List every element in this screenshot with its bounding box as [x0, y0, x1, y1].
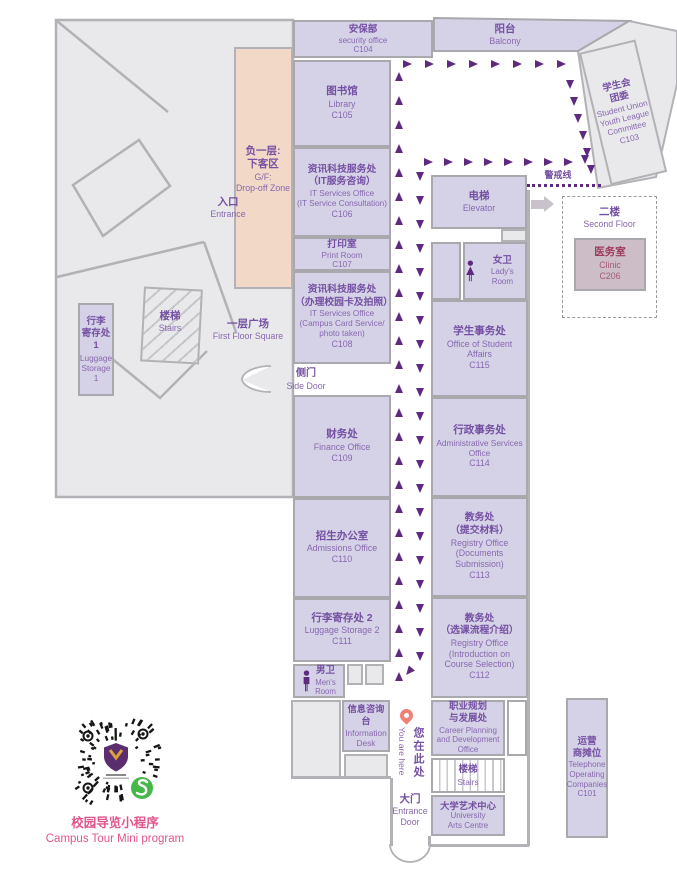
label-zh: 学生事务处	[453, 325, 506, 338]
tour-path-arrow	[395, 144, 403, 153]
label-en: Library	[329, 99, 356, 110]
tour-path-arrow	[416, 244, 424, 253]
label-zh: 行政事务处	[453, 424, 506, 437]
unlabeled-room	[507, 700, 527, 756]
label-zh: 职业规划 与发展处	[449, 701, 487, 725]
utility-box	[501, 229, 527, 242]
tour-path-arrow	[395, 360, 403, 369]
tour-path-arrow	[416, 508, 424, 517]
label-en: IT Services Office (IT Service Consultat…	[297, 189, 387, 209]
tour-path-arrow	[544, 158, 553, 166]
utility-box	[347, 664, 363, 685]
tour-path-arrow	[395, 456, 403, 465]
tour-path-arrow	[395, 240, 403, 249]
tour-path-arrow	[395, 264, 403, 273]
label-en: Finance Office	[314, 442, 371, 453]
room-career-planning: 职业规划 与发展处 Career Planning and Developmen…	[431, 700, 505, 756]
woman-icon	[465, 260, 476, 282]
room-student-affairs: 学生事务处 Office of Student Affairs C115	[431, 300, 528, 397]
tour-path-arrow	[557, 60, 566, 68]
label-zh: 教务处 （提交材料）	[450, 512, 509, 537]
label-zh: 男卫	[315, 665, 336, 677]
tour-path-arrow	[464, 158, 473, 166]
room-code: C109	[331, 453, 352, 465]
tour-path-arrow	[416, 604, 424, 613]
tour-path-arrow	[416, 220, 424, 229]
tour-path-arrow	[566, 80, 574, 89]
label-en: Career Planning and Development Office	[437, 726, 500, 755]
tour-path-arrow	[416, 484, 424, 493]
label-zh: 阳台	[455, 23, 555, 36]
room-security-office: 安保部 security office C104	[293, 20, 433, 58]
label-zh: 财务处	[326, 428, 358, 441]
qr-caption: 校园导览小程序 Campus Tour Mini program	[15, 812, 215, 845]
label-zh: 电梯	[469, 190, 490, 203]
entrance-label: 入口 Entrance	[193, 196, 263, 220]
qr-eye-dot	[86, 734, 89, 737]
main-door-label: 大门 Entrance Door	[383, 793, 437, 828]
label-en: G/F: Drop-off Zone	[228, 172, 298, 193]
room-luggage-storage-1: 行李 寄存处1 Luggage Storage 1	[78, 303, 114, 396]
label-zh: 大门	[383, 793, 437, 806]
dropoff-label: 负一层: 下客区 G/F: Drop-off Zone	[228, 145, 298, 193]
wall-corridor-right	[428, 836, 431, 846]
room-arts-centre: 大学艺术中心 University Arts Centre	[431, 795, 505, 836]
tour-path-arrow	[579, 131, 587, 140]
tour-path-arrow	[395, 504, 403, 513]
label-zh: 行李寄存处 2	[311, 612, 372, 625]
tour-path-arrow	[395, 72, 403, 81]
tour-path-arrow	[395, 336, 403, 345]
label-zh: 负一层: 下客区	[228, 145, 298, 172]
label-zh: 招生办公室	[316, 530, 369, 543]
label-en: Clinic	[599, 260, 621, 271]
man-icon	[302, 670, 311, 692]
qr-eye-dot	[141, 732, 144, 735]
label-zh: 图书馆	[326, 85, 358, 98]
tour-path-arrow	[416, 628, 424, 637]
crest-caption-line	[106, 774, 126, 776]
you-are-here-en: You are here	[397, 727, 407, 779]
label-en: Stairs	[457, 777, 478, 787]
room-code: C111	[332, 636, 352, 648]
label-zh: 打印室	[327, 239, 356, 252]
label-zh: 医务室	[594, 246, 626, 259]
label-zh: 楼梯	[458, 764, 477, 776]
tour-path-arrow	[447, 60, 456, 68]
label-en: Luggage Storage 1	[80, 353, 112, 383]
warning-line-label: 警戒线	[530, 170, 586, 182]
stairs-left-label: 楼梯 Stairs	[140, 310, 200, 334]
label-en: Registry Office (Introduction on Course …	[445, 638, 515, 670]
room-elevator: 电梯 Elevator	[431, 175, 527, 229]
main-door-arc	[390, 844, 410, 862]
room-clinic: 医务室 Clinic C206	[574, 238, 646, 291]
label-en: Men's Room	[315, 678, 336, 697]
label-en: Registry Office (Documents Submission)	[451, 538, 509, 570]
to-second-floor-arrow	[531, 200, 544, 209]
label-en: Luggage Storage 2	[305, 625, 380, 636]
tour-path-arrow	[395, 216, 403, 225]
tour-path-arrow	[416, 364, 424, 373]
room-information-desk: 信息咨询台 Information Desk	[342, 700, 390, 752]
tour-path-arrow	[416, 412, 424, 421]
label-zh: 二楼	[563, 206, 656, 219]
crest-caption-line	[103, 778, 129, 780]
qr-caption-en: Campus Tour Mini program	[15, 833, 215, 845]
label-en: Second Floor	[563, 219, 656, 230]
campus-map-canvas: 负一层: 下客区 G/F: Drop-off Zone 入口 Entrance …	[0, 0, 677, 871]
label-en: Lady's Room	[480, 267, 525, 287]
balcony-label: 阳台 Balcony	[455, 23, 555, 47]
label-zh: 信息咨询台	[344, 704, 388, 728]
room-code: C113	[469, 570, 489, 582]
room-code: C108	[331, 339, 352, 351]
label-en: Print Room	[322, 251, 363, 260]
label-en: Office of Student Affairs	[447, 339, 512, 360]
tour-path-arrow	[574, 114, 582, 123]
label-zh: 大学艺术中心	[440, 801, 496, 811]
qr-eye-dot	[86, 786, 89, 789]
label-zh: 警戒线	[530, 170, 586, 182]
tour-path-arrow	[444, 158, 453, 166]
tour-path-arrow	[416, 556, 424, 565]
label-en: Entrance Door	[383, 806, 437, 827]
utility-box	[365, 664, 384, 685]
tour-path-arrow	[395, 528, 403, 537]
label-zh: 安保部	[349, 24, 378, 36]
tour-path-arrow	[395, 672, 403, 681]
room-administrative-services: 行政事务处 Administrative Services Office C11…	[431, 397, 528, 497]
label-en: First Floor Square	[203, 331, 293, 342]
room-code: C106	[331, 209, 352, 221]
tour-path-arrow	[416, 316, 424, 325]
tour-path-arrow	[395, 312, 403, 321]
label-en: Balcony	[455, 36, 555, 47]
label-zh: 一层广场	[203, 318, 293, 331]
tour-path-arrow	[504, 158, 513, 166]
tour-path-arrow	[395, 432, 403, 441]
tour-path-arrow	[395, 480, 403, 489]
label-en: Entrance	[193, 209, 263, 220]
side-door-label: 侧门 Side Door	[268, 368, 344, 392]
wall-bottom	[429, 844, 529, 847]
label-en: IT Services Office (Campus Card Service/…	[299, 309, 384, 339]
label-zh: 资讯科技服务处 （办理校园卡及拍照）	[295, 284, 389, 309]
label-en: Elevator	[463, 203, 495, 214]
room-admissions-office: 招生办公室 Admissions Office C110	[293, 498, 391, 598]
label-zh: 入口	[193, 196, 263, 209]
label-en: Telephone Operating Companies	[567, 760, 607, 789]
label-zh: 侧门	[268, 368, 344, 381]
tour-path-arrow	[416, 268, 424, 277]
room-print-room: 打印室 Print Room C107	[293, 237, 391, 271]
tour-path-arrow	[469, 60, 478, 68]
label-zh: 教务处 （选课流程介绍）	[440, 613, 518, 638]
tour-path-arrow	[395, 168, 403, 177]
room-code: C110	[332, 554, 352, 566]
tour-path-arrow	[395, 576, 403, 585]
tour-path-arrow	[425, 60, 434, 68]
tour-path-arrow	[395, 288, 403, 297]
tour-path-arrow	[513, 60, 522, 68]
label-zh: 行李 寄存处1	[80, 316, 112, 352]
tour-path-arrow	[395, 408, 403, 417]
tour-path-arrow	[395, 192, 403, 201]
tour-path-arrow	[587, 165, 595, 174]
tour-path-arrow	[416, 196, 424, 205]
stairs-bottom: 楼梯 Stairs	[431, 758, 505, 793]
tour-path-arrow	[395, 624, 403, 633]
tour-path-arrow	[581, 155, 589, 164]
unlabeled-room	[291, 700, 341, 778]
tour-path-arrow	[416, 580, 424, 589]
room-registry-documents: 教务处 （提交材料） Registry Office (Documents Su…	[431, 497, 528, 597]
tour-path-arrow	[395, 120, 403, 129]
tour-path-arrow	[491, 60, 500, 68]
tour-path-arrow	[535, 60, 544, 68]
label-en: Administrative Services Office	[436, 438, 522, 458]
room-code: C105	[331, 110, 352, 122]
tour-path-arrow	[416, 460, 424, 469]
unlabeled-room	[431, 242, 461, 300]
room-code: C107	[332, 260, 352, 269]
tour-path-arrow	[424, 158, 433, 166]
room-mens-room: 男卫 Men's Room	[293, 664, 345, 698]
you-are-here-zh: 您在此处	[410, 727, 426, 785]
label-en: Admissions Office	[307, 543, 377, 554]
tour-path-arrow	[416, 340, 424, 349]
tour-path-arrow	[395, 96, 403, 105]
tour-path-arrow	[564, 158, 573, 166]
tour-path-arrow	[416, 388, 424, 397]
tour-path-arrow	[416, 652, 424, 661]
room-finance-office: 财务处 Finance Office C109	[293, 395, 391, 498]
room-code: C115	[469, 360, 489, 372]
tour-path-arrow	[395, 600, 403, 609]
room-code: C114	[469, 458, 489, 470]
room-registry-course-selection: 教务处 （选课流程介绍） Registry Office (Introducti…	[431, 597, 528, 698]
room-luggage-storage-2: 行李寄存处 2 Luggage Storage 2 C111	[293, 598, 391, 662]
room-telecom-booths: 运营 商摊位 Telephone Operating Companies C10…	[566, 698, 608, 838]
tour-path-arrow	[416, 436, 424, 445]
room-code: C104	[353, 46, 372, 55]
room-library: 图书馆 Library C105	[293, 60, 391, 147]
qr-code	[66, 712, 166, 812]
room-code: C206	[599, 271, 620, 283]
room-code: C112	[469, 670, 489, 682]
tour-path-arrow	[395, 648, 403, 657]
tour-path-arrow	[416, 532, 424, 541]
tour-path-arrow	[395, 552, 403, 561]
tour-path-arrow	[395, 384, 403, 393]
label-zh: 女卫	[480, 255, 525, 267]
main-door-arc	[410, 844, 430, 862]
label-en: Information Desk	[345, 728, 387, 748]
label-en: Stairs	[140, 323, 200, 334]
tour-path-arrow	[570, 97, 578, 106]
utility-box	[344, 754, 388, 778]
tour-path-arrow	[524, 158, 533, 166]
warning-line	[527, 184, 601, 187]
tour-path-arrow	[403, 60, 412, 68]
tour-path-arrow	[484, 158, 493, 166]
room-it-services-campus-card: 资讯科技服务处 （办理校园卡及拍照） IT Services Office (C…	[293, 271, 391, 364]
label-zh: 楼梯	[140, 310, 200, 323]
label-zh: 运营 商摊位	[573, 736, 602, 760]
label-zh: 资讯科技服务处 （IT服务咨询）	[308, 164, 377, 189]
qr-caption-zh: 校园导览小程序	[15, 812, 215, 831]
room-code: C101	[577, 789, 596, 800]
tour-path-arrow	[416, 172, 424, 181]
label-en: University Arts Centre	[448, 811, 488, 829]
tour-path-arrow	[416, 292, 424, 301]
first-floor-square-label: 一层广场 First Floor Square	[203, 318, 293, 342]
room-ladies-room: 女卫 Lady's Room	[463, 242, 527, 300]
room-it-services-consultation: 资讯科技服务处 （IT服务咨询） IT Services Office (IT …	[293, 147, 391, 237]
label-en: Side Door	[268, 381, 344, 392]
